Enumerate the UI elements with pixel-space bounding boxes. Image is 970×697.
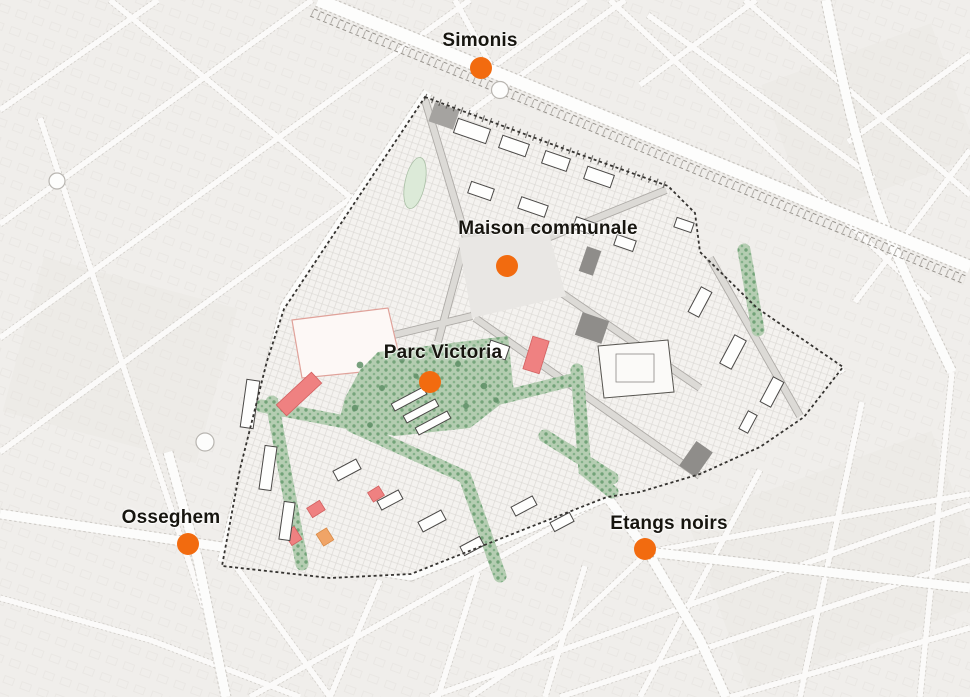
marker-dot-osseghem (177, 533, 199, 555)
large-white-block (598, 340, 674, 398)
marker-label-simonis: Simonis (442, 30, 517, 52)
marker-label-parc-victoria: Parc Victoria (384, 342, 502, 364)
marker-dot-maison-communale (496, 255, 518, 277)
marker-dot-etangs-noirs (634, 538, 656, 560)
marker-label-osseghem: Osseghem (122, 507, 221, 529)
marker-dot-parc-victoria (419, 371, 441, 393)
marker-label-etangs-noirs: Etangs noirs (610, 513, 727, 535)
marker-dot-simonis (470, 57, 492, 79)
map-canvas: SimonisMaison communaleParc VictoriaOsse… (0, 0, 970, 697)
marker-label-maison-communale: Maison communale (458, 218, 638, 240)
